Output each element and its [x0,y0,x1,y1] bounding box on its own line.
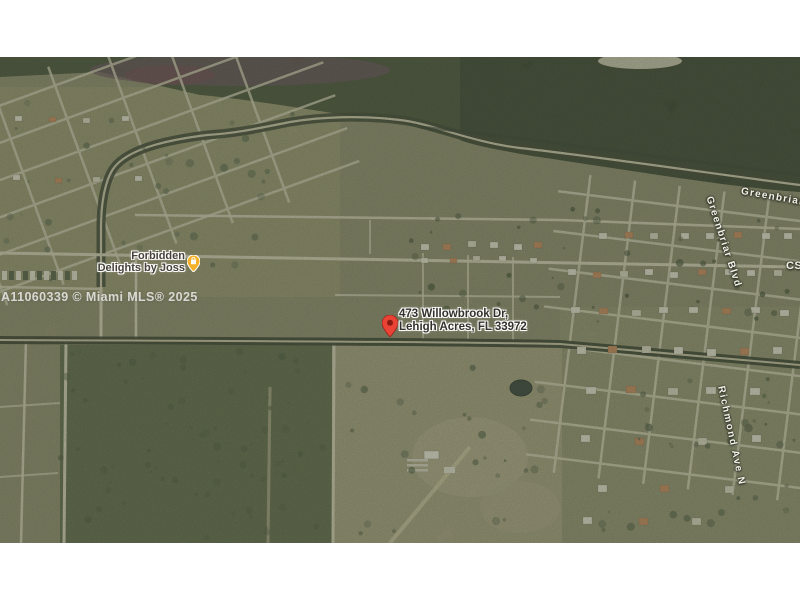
address-line2: Lehigh Acres, FL 33972 [399,321,527,334]
mls-watermark: A11060339 © Miami MLS® 2025 [1,290,198,304]
property-address-label: 473 Willowbrook Dr, Lehigh Acres, FL 339… [399,308,527,333]
shopping-bag-icon [187,255,200,272]
property-location-pin[interactable] [382,315,398,337]
poi-label-line2: Delights by Joss [96,262,185,274]
poi-label-line1: Forbidden [96,250,185,262]
location-pin-icon [382,315,398,337]
street-label-edge-partial: CS [786,260,800,272]
address-line1: 473 Willowbrook Dr, [399,308,527,321]
satellite-map-canvas[interactable]: A11060339 © Miami MLS® 2025 Greenbriar B… [0,57,800,543]
shopping-poi-marker[interactable] [187,255,200,272]
mls-listing-map-photo: { "map": { "marker": { "address_line1": … [0,0,800,600]
poi-label: Forbidden Delights by Joss [96,250,185,274]
